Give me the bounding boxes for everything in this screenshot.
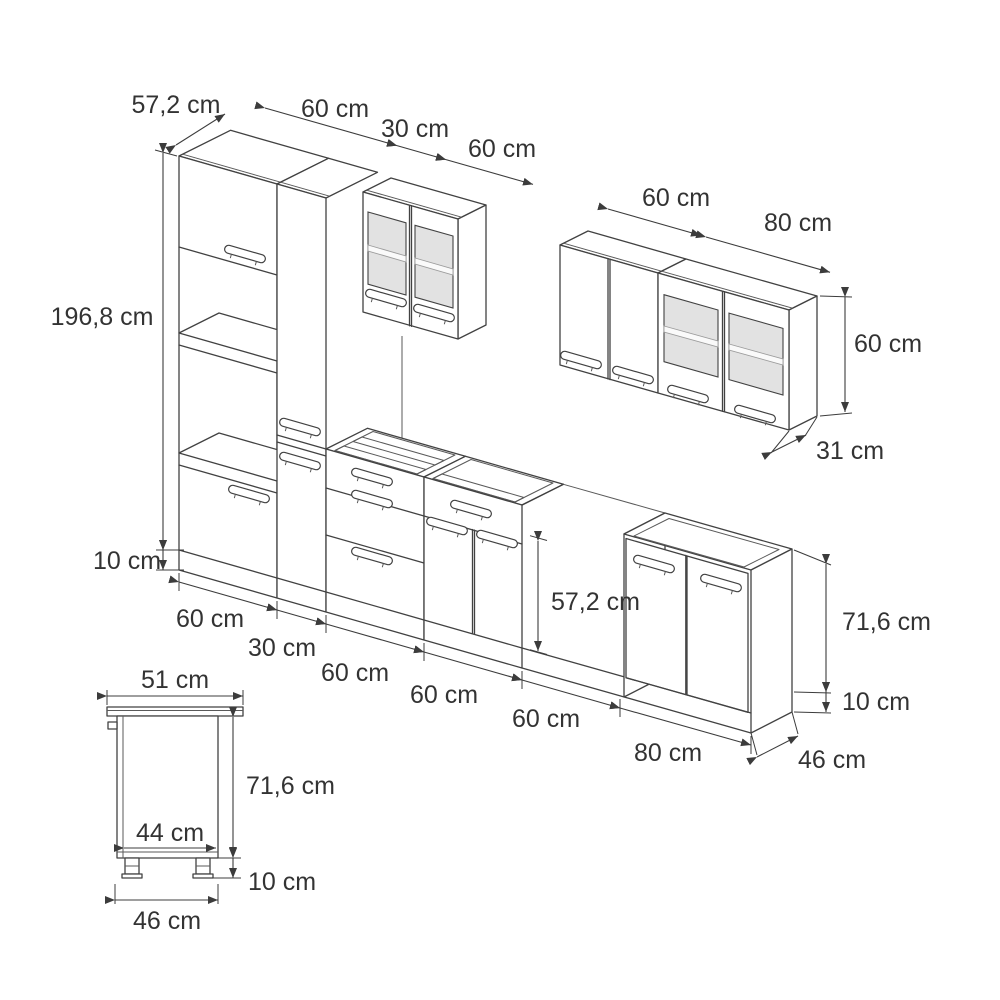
dim-side-top-depth: 51 cm (107, 666, 243, 705)
dim-side-plinth: 10 cm (212, 858, 316, 896)
dim-label-tall-width-2: 30 cm (381, 115, 449, 143)
cabinet-front-face (277, 184, 326, 612)
cabinet-front-face (179, 156, 277, 598)
dim-label-side-plinth: 10 cm (248, 868, 316, 896)
dim-label-base-width-4: 60 cm (410, 681, 478, 709)
dim-label-base-width-1: 60 cm (176, 605, 244, 633)
dim-label-side-height: 71,6 cm (246, 772, 335, 800)
leg-foot (122, 874, 142, 878)
dim-side-inner-width: 44 cm (124, 819, 216, 848)
base-door-drawer-unit (424, 456, 563, 668)
dim-label-side-top-depth: 51 cm (141, 666, 209, 694)
cabinet-side-face (458, 205, 486, 339)
dim-label-base-width-3: 60 cm (321, 659, 389, 687)
dim-wall-height: 60 cm (820, 296, 922, 416)
dim-label-side-bottom-depth: 46 cm (133, 907, 201, 935)
sink-cabinet (624, 513, 792, 733)
dim-side-height: 71,6 cm (212, 716, 335, 858)
hinge-tab (108, 722, 117, 729)
dim-label-base-width-5: 60 cm (512, 705, 580, 733)
wall-cabinet-glass-60-top (363, 178, 486, 440)
kitchen-dimension-diagram: 57,2 cm 60 cm 30 cm 60 cm 196,8 cm 10 cm… (0, 0, 1000, 1000)
dim-tall-depth: 57,2 cm (132, 91, 225, 145)
dim-label-wall-width-1: 60 cm (642, 184, 710, 212)
dim-label-tall-width-3: 60 cm (468, 135, 536, 163)
dim-label-base-width-6: 80 cm (634, 739, 702, 767)
dim-label-tall-height: 196,8 cm (51, 303, 154, 331)
cabinet-side-face (789, 296, 817, 430)
diagram-canvas: 57,2 cm 60 cm 30 cm 60 cm 196,8 cm 10 cm… (0, 0, 1000, 1000)
dim-label-base-depth: 46 cm (798, 746, 866, 774)
dim-side-bottom-depth: 46 cm (115, 884, 218, 935)
side-face (751, 549, 792, 733)
dim-tall-plinth: 10 cm (93, 547, 163, 575)
countertop (107, 707, 243, 716)
dim-label-tall-plinth: 10 cm (93, 547, 161, 575)
dim-label-base-front-height: 57,2 cm (551, 588, 640, 616)
dim-label-base-body-height: 71,6 cm (842, 608, 931, 636)
side-view-cabinet (107, 707, 243, 878)
dim-label-tall-depth: 57,2 cm (132, 91, 221, 119)
leg-foot (193, 874, 213, 878)
dim-label-side-inner-width: 44 cm (136, 819, 204, 847)
dim-label-wall-height: 60 cm (854, 330, 922, 358)
dim-label-wall-depth: 31 cm (816, 437, 884, 465)
wall-cabinet-glass-80-right (658, 259, 817, 430)
dim-label-wall-width-2: 80 cm (764, 209, 832, 237)
dim-label-base-plinth: 10 cm (842, 688, 910, 716)
dim-base-plinth: 10 cm (826, 688, 910, 716)
dim-tall-height: 196,8 cm (51, 150, 184, 570)
back-rail-line (563, 484, 665, 513)
dim-label-tall-width-1: 60 cm (301, 95, 369, 123)
dim-label-base-width-2: 30 cm (248, 634, 316, 662)
